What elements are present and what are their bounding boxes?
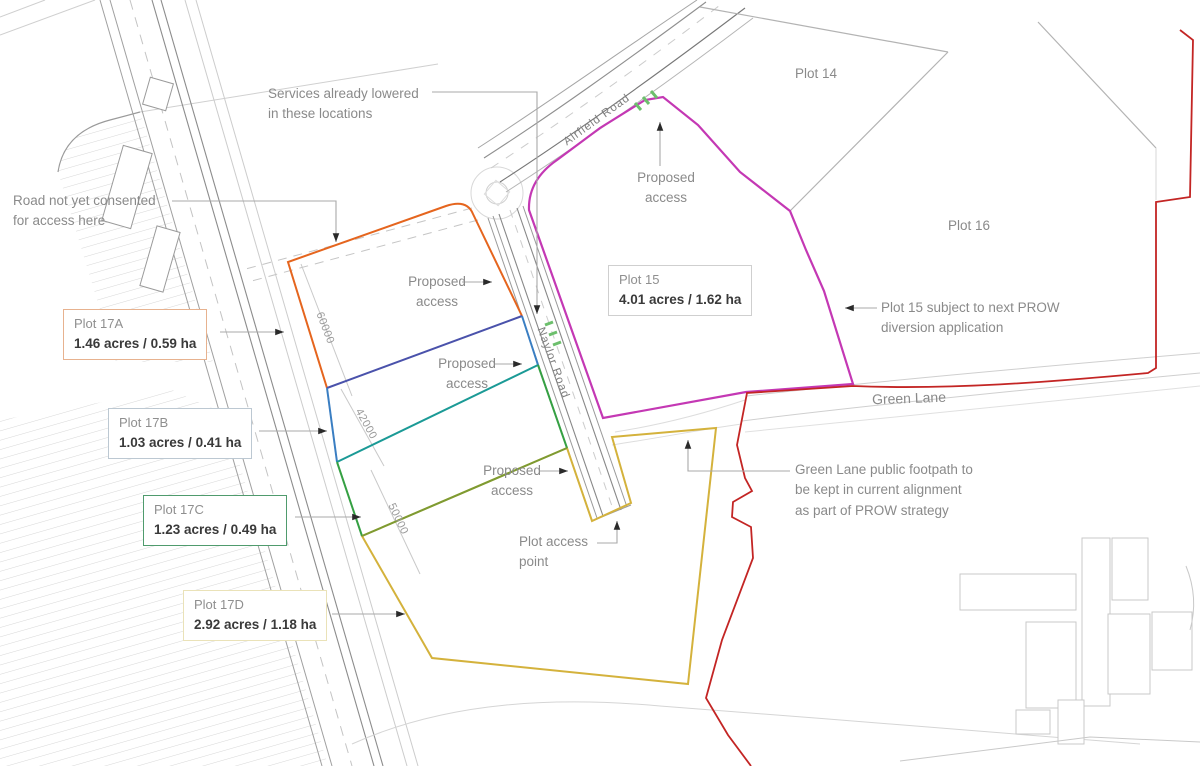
pa1-line2: access (637, 188, 695, 208)
existing-track-dashed (242, 208, 478, 282)
gray-plot-boundaries (700, 7, 1156, 211)
field-lines (0, 0, 95, 35)
road-not-consented-note: Road not yet consented for access here (13, 191, 156, 232)
plot17c-area: 1.23 acres / 0.49 ha (154, 520, 276, 540)
plot17c-label-box: Plot 17C 1.23 acres / 0.49 ha (143, 495, 287, 546)
plot17a-title: Plot 17A (74, 314, 196, 334)
pa1-line1: Proposed (637, 168, 695, 188)
proposed-access-2: Proposed access (408, 272, 466, 313)
plot17b-title: Plot 17B (119, 413, 241, 433)
site-plan: Services already lowered in these locati… (0, 0, 1200, 766)
plot17d-label-box: Plot 17D 2.92 acres / 1.18 ha (183, 590, 327, 641)
green-lane-footpath-note: Green Lane public footpath to be kept in… (795, 460, 973, 521)
plot17c-title: Plot 17C (154, 500, 276, 520)
prow-diversion-note: Plot 15 subject to next PROW diversion a… (881, 298, 1060, 339)
farm-buildings (900, 538, 1200, 761)
glf-line1: Green Lane public footpath to (795, 460, 973, 480)
pa3-line2: access (438, 374, 496, 394)
plot17d-area: 2.92 acres / 1.18 ha (194, 615, 316, 635)
services-note-line2: in these locations (268, 104, 419, 124)
plot14-label: Plot 14 (795, 66, 837, 81)
services-note: Services already lowered in these locati… (268, 84, 419, 125)
pap-line1: Plot access (519, 532, 588, 552)
rnc-line1: Road not yet consented (13, 191, 156, 211)
plot17b-boundary (327, 316, 538, 462)
pa4-line1: Proposed (483, 461, 541, 481)
plot-access-point-note: Plot access point (519, 532, 588, 573)
prow-line2: diversion application (881, 318, 1060, 338)
airfield-road-lines (478, 0, 753, 192)
pa4-line2: access (483, 481, 541, 501)
pap-line2: point (519, 552, 588, 572)
glf-line3: as part of PROW strategy (795, 501, 973, 521)
plot17b-label-box: Plot 17B 1.03 acres / 0.41 ha (108, 408, 252, 459)
plot17a-area: 1.46 acres / 0.59 ha (74, 334, 196, 354)
services-note-line1: Services already lowered (268, 84, 419, 104)
plot15-boundary (529, 97, 853, 418)
roundabout (471, 167, 523, 219)
plot17b-area: 1.03 acres / 0.41 ha (119, 433, 241, 453)
proposed-access-1: Proposed access (637, 168, 695, 209)
pa3-line1: Proposed (438, 354, 496, 374)
plot15-label-box: Plot 15 4.01 acres / 1.62 ha (608, 265, 752, 316)
proposed-access-3: Proposed access (438, 354, 496, 395)
plot15-area: 4.01 acres / 1.62 ha (619, 290, 741, 310)
pa2-line1: Proposed (408, 272, 466, 292)
proposed-access-4: Proposed access (483, 461, 541, 502)
green-lane-label: Green Lane (872, 389, 946, 408)
plot16-label: Plot 16 (948, 218, 990, 233)
prow-line1: Plot 15 subject to next PROW (881, 298, 1060, 318)
plot17a-label-box: Plot 17A 1.46 acres / 0.59 ha (63, 309, 207, 360)
rnc-line2: for access here (13, 211, 156, 231)
glf-line2: be kept in current alignment (795, 480, 973, 500)
plot15-title: Plot 15 (619, 270, 741, 290)
pa2-line2: access (408, 292, 466, 312)
plot17d-title: Plot 17D (194, 595, 316, 615)
